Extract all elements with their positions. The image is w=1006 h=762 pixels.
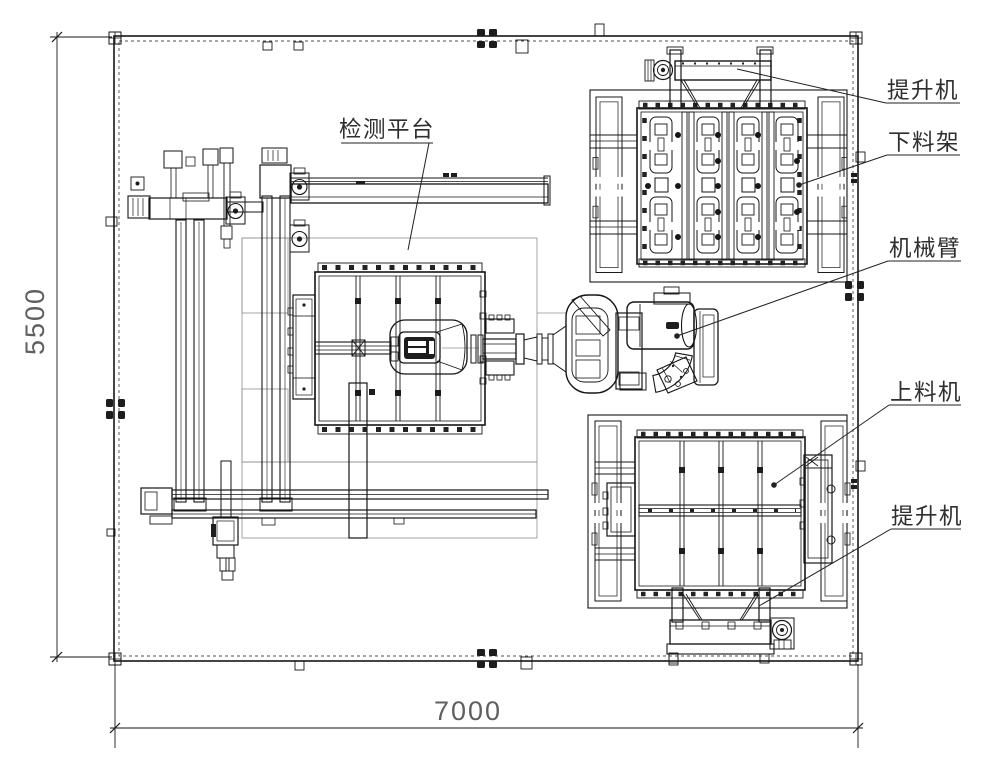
load-machine-label: 上料机 bbox=[890, 380, 962, 405]
height-dimension-label: 5500 bbox=[20, 287, 50, 355]
plan-drawing: 5500 7000 bbox=[0, 0, 1006, 762]
cad-drawing-canvas: 5500 7000 bbox=[0, 0, 1006, 762]
gantry-system bbox=[128, 148, 550, 580]
dimension-width: 7000 bbox=[110, 664, 863, 748]
robot-arm-body bbox=[566, 287, 718, 393]
platform-pit-outline bbox=[242, 238, 566, 538]
top-hoist-label: 提升机 bbox=[887, 78, 959, 103]
width-dimension-label: 7000 bbox=[434, 696, 502, 726]
bottom-hoist bbox=[667, 588, 794, 663]
unload-rack-assembly bbox=[590, 47, 847, 282]
robot-end-effector bbox=[390, 320, 467, 374]
callout-load-machine: 上料机 bbox=[771, 380, 962, 488]
inspection-platform-label: 检测平台 bbox=[339, 117, 435, 142]
top-hoist bbox=[645, 47, 773, 108]
dimension-height: 5500 bbox=[20, 32, 112, 662]
robot-arm-label: 机械臂 bbox=[889, 236, 961, 261]
load-machine-assembly bbox=[588, 415, 850, 663]
unload-rack-label: 下料架 bbox=[888, 130, 960, 155]
inspection-platform-machine bbox=[288, 263, 486, 434]
bottom-hoist-label: 提升机 bbox=[891, 504, 963, 529]
